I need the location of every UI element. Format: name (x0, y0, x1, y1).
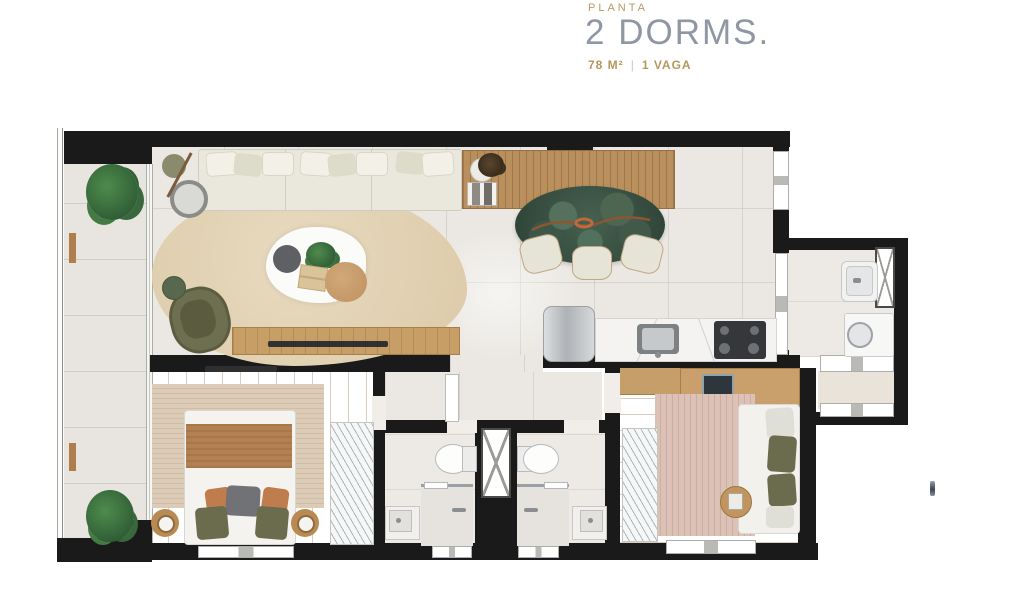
sofa-cushion (356, 152, 388, 176)
dining-chair (572, 246, 612, 280)
entry-threshold-upper (820, 355, 894, 372)
bathroom2-window (518, 546, 559, 558)
master-pillow-gray (225, 485, 261, 517)
bathroom1-toilet-tank (462, 446, 477, 472)
bedroom2-side-table-decor (728, 493, 743, 510)
bathroom2-shower-door (544, 482, 568, 489)
meta-separator: | (624, 58, 642, 72)
bathroom2-toilet-bowl (523, 444, 559, 474)
coffee-table-wood (325, 262, 367, 302)
coffee-table-dark (273, 245, 301, 273)
bedroom2-pillow-light (765, 407, 795, 439)
bedroom2-pillow-olive (767, 473, 797, 507)
duct-shaft-bathrooms (481, 428, 511, 498)
coffee-table-books (297, 264, 328, 292)
bathroom2-shower (517, 484, 569, 546)
balcony-plant-top (86, 164, 138, 220)
kitchen-sink-basin (642, 328, 674, 350)
bathroom2-door-gap (564, 420, 599, 433)
balcony-wood-post (69, 233, 76, 263)
bedroom2-window (666, 540, 756, 554)
cooktop-burner (720, 326, 729, 335)
bathroom2-sink-faucet (588, 518, 593, 523)
master-tv (205, 366, 277, 372)
cooktop-burner (719, 343, 730, 354)
master-wardrobe (330, 422, 374, 545)
nightstand-lamp (297, 515, 315, 533)
entry-door (820, 403, 894, 417)
duct-shaft-laundry (875, 247, 895, 308)
bedroom2-pillow-light (766, 506, 794, 528)
master-bedroom-window (198, 546, 294, 558)
balcony-glass-railing (57, 128, 64, 560)
cooktop-burner (748, 343, 759, 354)
kitchen-faucet (655, 352, 661, 358)
plan-area: 78 M² (588, 58, 624, 72)
master-bedroom-door (372, 396, 386, 430)
bedroom2-pillow-olive (767, 435, 797, 473)
bathroom2-shower-fixture (524, 508, 538, 512)
floor-lamp (170, 180, 208, 218)
living-tv (268, 341, 388, 347)
sofa-cushion (262, 152, 294, 176)
washtub-faucet (853, 278, 861, 283)
wall-bedroom2-right (798, 368, 816, 548)
floor-plan-page: { "header": { "eyebrow": "PLANTA", "titl… (0, 0, 1024, 613)
side-table-green (162, 276, 186, 300)
wall-top-left-block (64, 131, 152, 164)
bathroom1-sink-faucet (396, 518, 401, 523)
bathroom1-shower (421, 484, 473, 546)
kitchen-window (773, 151, 789, 210)
master-pillow-olive (255, 506, 290, 541)
master-bed-blanket (186, 424, 292, 468)
wall-right-outer (894, 238, 908, 425)
refrigerator (543, 306, 595, 362)
master-pillow-olive (195, 506, 230, 541)
bathroom1-door-leaf (445, 374, 459, 422)
bedroom2-door (604, 373, 621, 413)
wall-balcony-step (132, 520, 152, 542)
bathroom1-shower-door (424, 482, 448, 489)
coffee-table-plant (306, 242, 336, 268)
corridor-floor (385, 372, 602, 422)
sofa-cushion (395, 151, 425, 175)
washing-machine-door (847, 322, 873, 348)
plan-title: 2 DORMS. (585, 13, 770, 53)
sofa-cushion (421, 151, 455, 177)
sideboard-tray (467, 182, 497, 206)
cooktop-burner (750, 326, 759, 335)
balcony-plant-bottom (86, 490, 134, 542)
balcony-wood-post (69, 443, 76, 471)
north-marker-icon (930, 481, 935, 496)
nightstand-lamp (157, 515, 175, 533)
wall-top (150, 131, 790, 147)
plan-meta: 78 M²|1 VAGA (588, 58, 692, 72)
plan-parking: 1 VAGA (642, 58, 692, 72)
sideboard-plant (478, 153, 504, 177)
bathroom1-window (432, 546, 472, 558)
bathroom1-shower-fixture (452, 508, 466, 512)
bedroom2-wardrobe (622, 428, 658, 542)
sofa-cushion (233, 153, 263, 178)
sofa-cushion (327, 153, 357, 178)
